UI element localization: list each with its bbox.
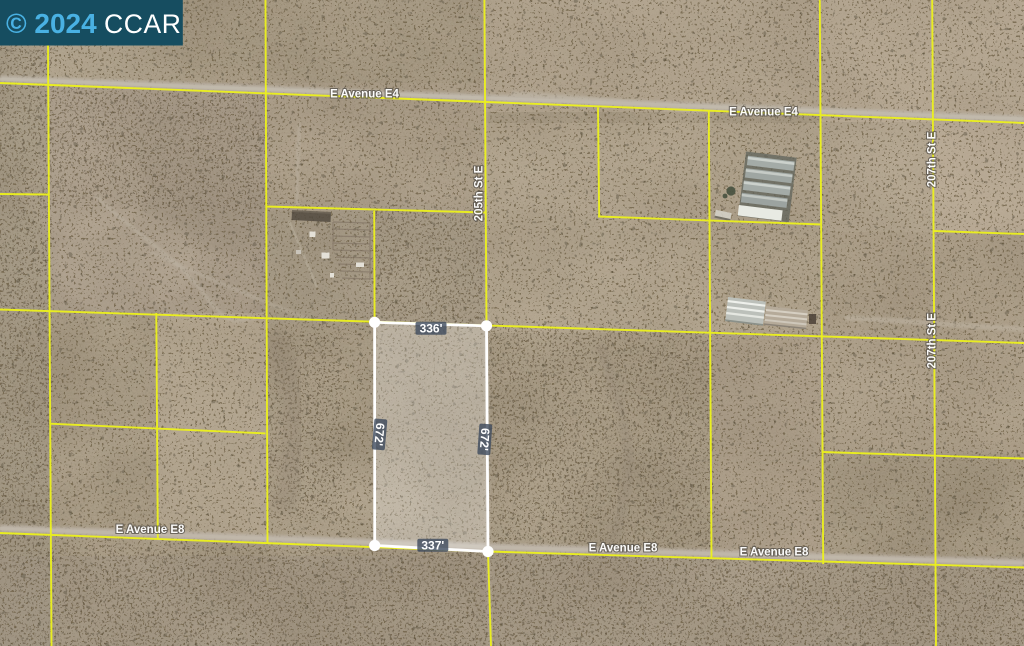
svg-text:672': 672'	[371, 422, 387, 446]
svg-text:© 2024: © 2024	[6, 8, 97, 39]
svg-text:672': 672'	[477, 427, 493, 451]
svg-text:205th St E: 205th St E	[474, 165, 486, 221]
svg-text:337': 337'	[421, 538, 444, 552]
svg-text:E Avenue E4: E Avenue E4	[330, 89, 399, 101]
svg-text:E Avenue E8: E Avenue E8	[589, 543, 658, 555]
svg-text:CCAR: CCAR	[104, 9, 182, 39]
svg-text:E Avenue E8: E Avenue E8	[740, 547, 809, 559]
svg-text:207th St E: 207th St E	[927, 313, 939, 369]
svg-text:207th St E: 207th St E	[927, 131, 939, 187]
svg-text:E Avenue E8: E Avenue E8	[116, 524, 185, 536]
svg-text:336': 336'	[420, 321, 443, 335]
svg-text:E Avenue E4: E Avenue E4	[729, 107, 798, 119]
